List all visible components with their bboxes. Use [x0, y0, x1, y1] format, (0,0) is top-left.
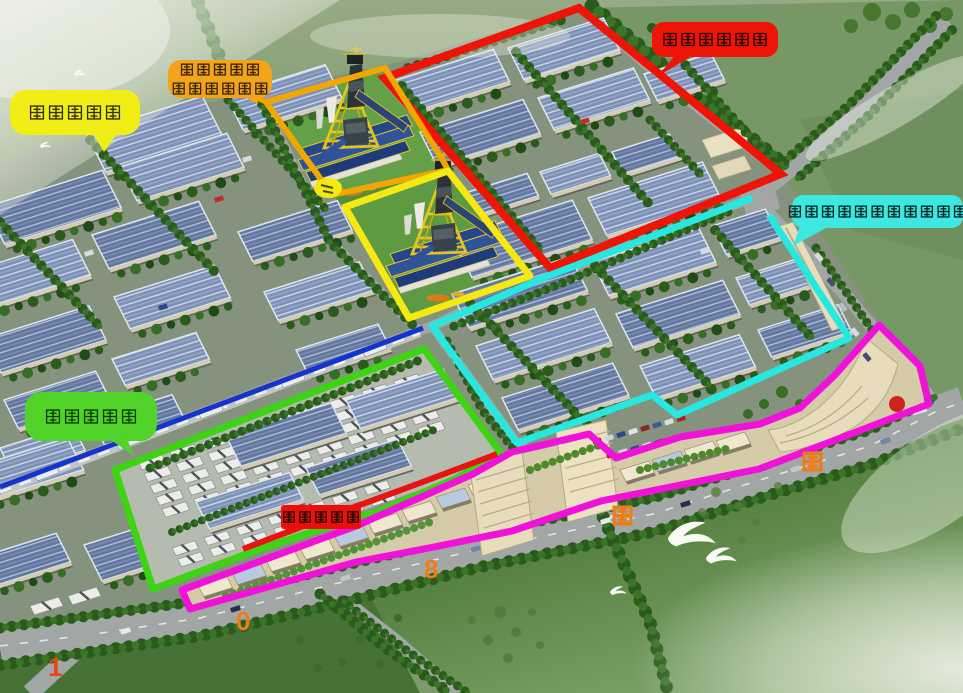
svg-text:0: 0	[236, 606, 250, 636]
svg-text:8: 8	[424, 554, 438, 584]
svg-text:1: 1	[48, 652, 62, 682]
